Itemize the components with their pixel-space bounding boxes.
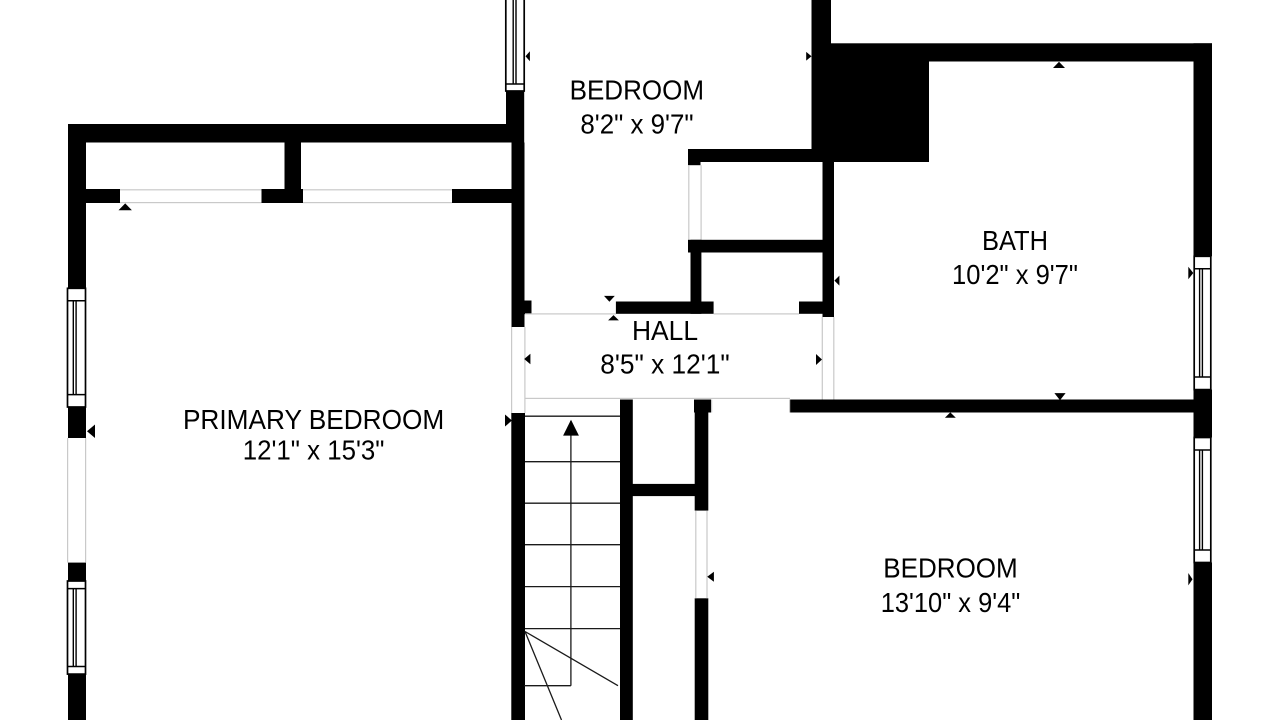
svg-text:HALL: HALL — [632, 315, 698, 346]
svg-text:BATH: BATH — [982, 225, 1048, 256]
svg-text:PRIMARY BEDROOM: PRIMARY BEDROOM — [183, 404, 444, 435]
svg-text:BEDROOM: BEDROOM — [570, 74, 704, 105]
svg-text:8'5" x 12'1": 8'5" x 12'1" — [600, 348, 729, 379]
svg-text:13'10" x 9'4": 13'10" x 9'4" — [881, 587, 1021, 618]
svg-text:10'2" x 9'7": 10'2" x 9'7" — [952, 259, 1078, 290]
svg-text:BEDROOM: BEDROOM — [883, 552, 1018, 583]
svg-text:12'1" x 15'3": 12'1" x 15'3" — [243, 434, 385, 465]
svg-text:8'2" x 9'7": 8'2" x 9'7" — [580, 108, 693, 139]
